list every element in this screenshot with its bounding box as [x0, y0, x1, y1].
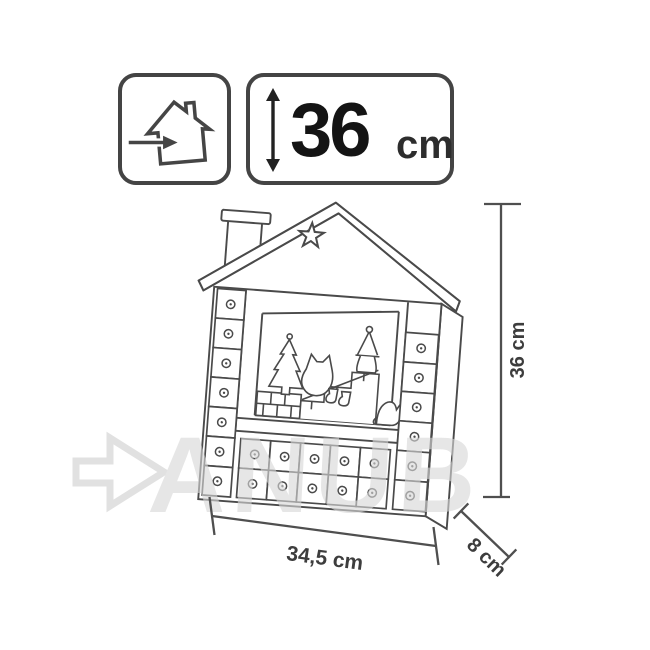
watermark-text: ANUB [146, 414, 484, 535]
depth-dimension-label: 8 cm [462, 534, 510, 581]
dimension-drawing: ANUB 36 cm 34,5 cm 8 cm [0, 0, 650, 650]
height-dimension-label: 36 cm [507, 322, 529, 379]
product-dimension-diagram: 36 cm [0, 0, 650, 650]
watermark: ANUB [76, 414, 484, 535]
width-dimension-label: 34,5 cm [285, 542, 364, 575]
